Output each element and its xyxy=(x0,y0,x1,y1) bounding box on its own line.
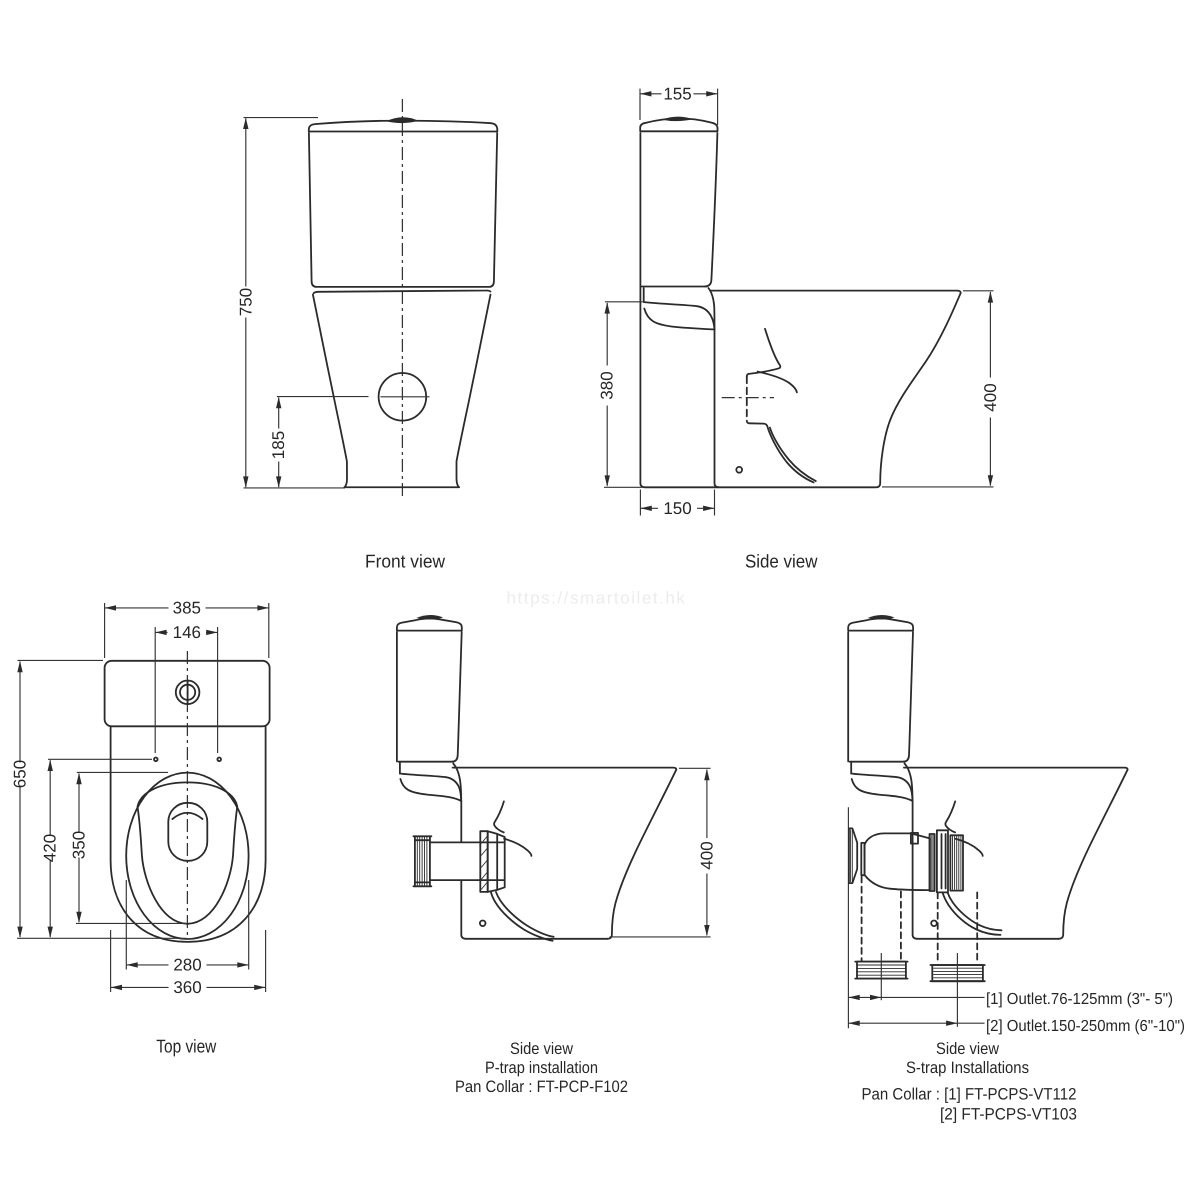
svg-text:280: 280 xyxy=(173,955,201,974)
svg-text:[2] Outlet.150-250mm (6"-10"): [2] Outlet.150-250mm (6"-10") xyxy=(986,1018,1185,1035)
svg-text:155: 155 xyxy=(663,84,691,103)
svg-text:Side view: Side view xyxy=(936,1040,999,1058)
svg-text:Pan Collar : FT-PCP-F102: Pan Collar : FT-PCP-F102 xyxy=(455,1078,628,1096)
svg-text:P-trap installation: P-trap installation xyxy=(485,1059,598,1077)
svg-text:360: 360 xyxy=(173,978,201,997)
svg-text:385: 385 xyxy=(173,598,201,617)
svg-text:https://smartoilet.hk: https://smartoilet.hk xyxy=(507,589,687,608)
svg-text:Side view: Side view xyxy=(510,1040,573,1058)
svg-text:380: 380 xyxy=(598,371,617,399)
svg-text:420: 420 xyxy=(41,834,60,862)
svg-text:185: 185 xyxy=(269,431,288,459)
svg-text:400: 400 xyxy=(981,383,1000,411)
svg-text:Pan Collar : [1] FT-PCPS-VT112: Pan Collar : [1] FT-PCPS-VT112 xyxy=(862,1086,1077,1104)
svg-text:S-trap Installations: S-trap Installations xyxy=(906,1059,1029,1077)
svg-text:Top view: Top view xyxy=(156,1036,217,1057)
svg-text:146: 146 xyxy=(173,623,201,642)
svg-text:150: 150 xyxy=(663,499,691,518)
svg-text:[2] FT-PCPS-VT103: [2] FT-PCPS-VT103 xyxy=(940,1106,1077,1124)
svg-text:Side view: Side view xyxy=(745,551,818,572)
svg-text:750: 750 xyxy=(236,288,255,316)
svg-text:650: 650 xyxy=(11,760,30,788)
svg-text:[1] Outlet.76-125mm (3"- 5"): [1] Outlet.76-125mm (3"- 5") xyxy=(986,991,1173,1008)
svg-text:Front view: Front view xyxy=(365,551,446,572)
svg-text:400: 400 xyxy=(697,841,716,869)
svg-text:350: 350 xyxy=(70,831,89,859)
